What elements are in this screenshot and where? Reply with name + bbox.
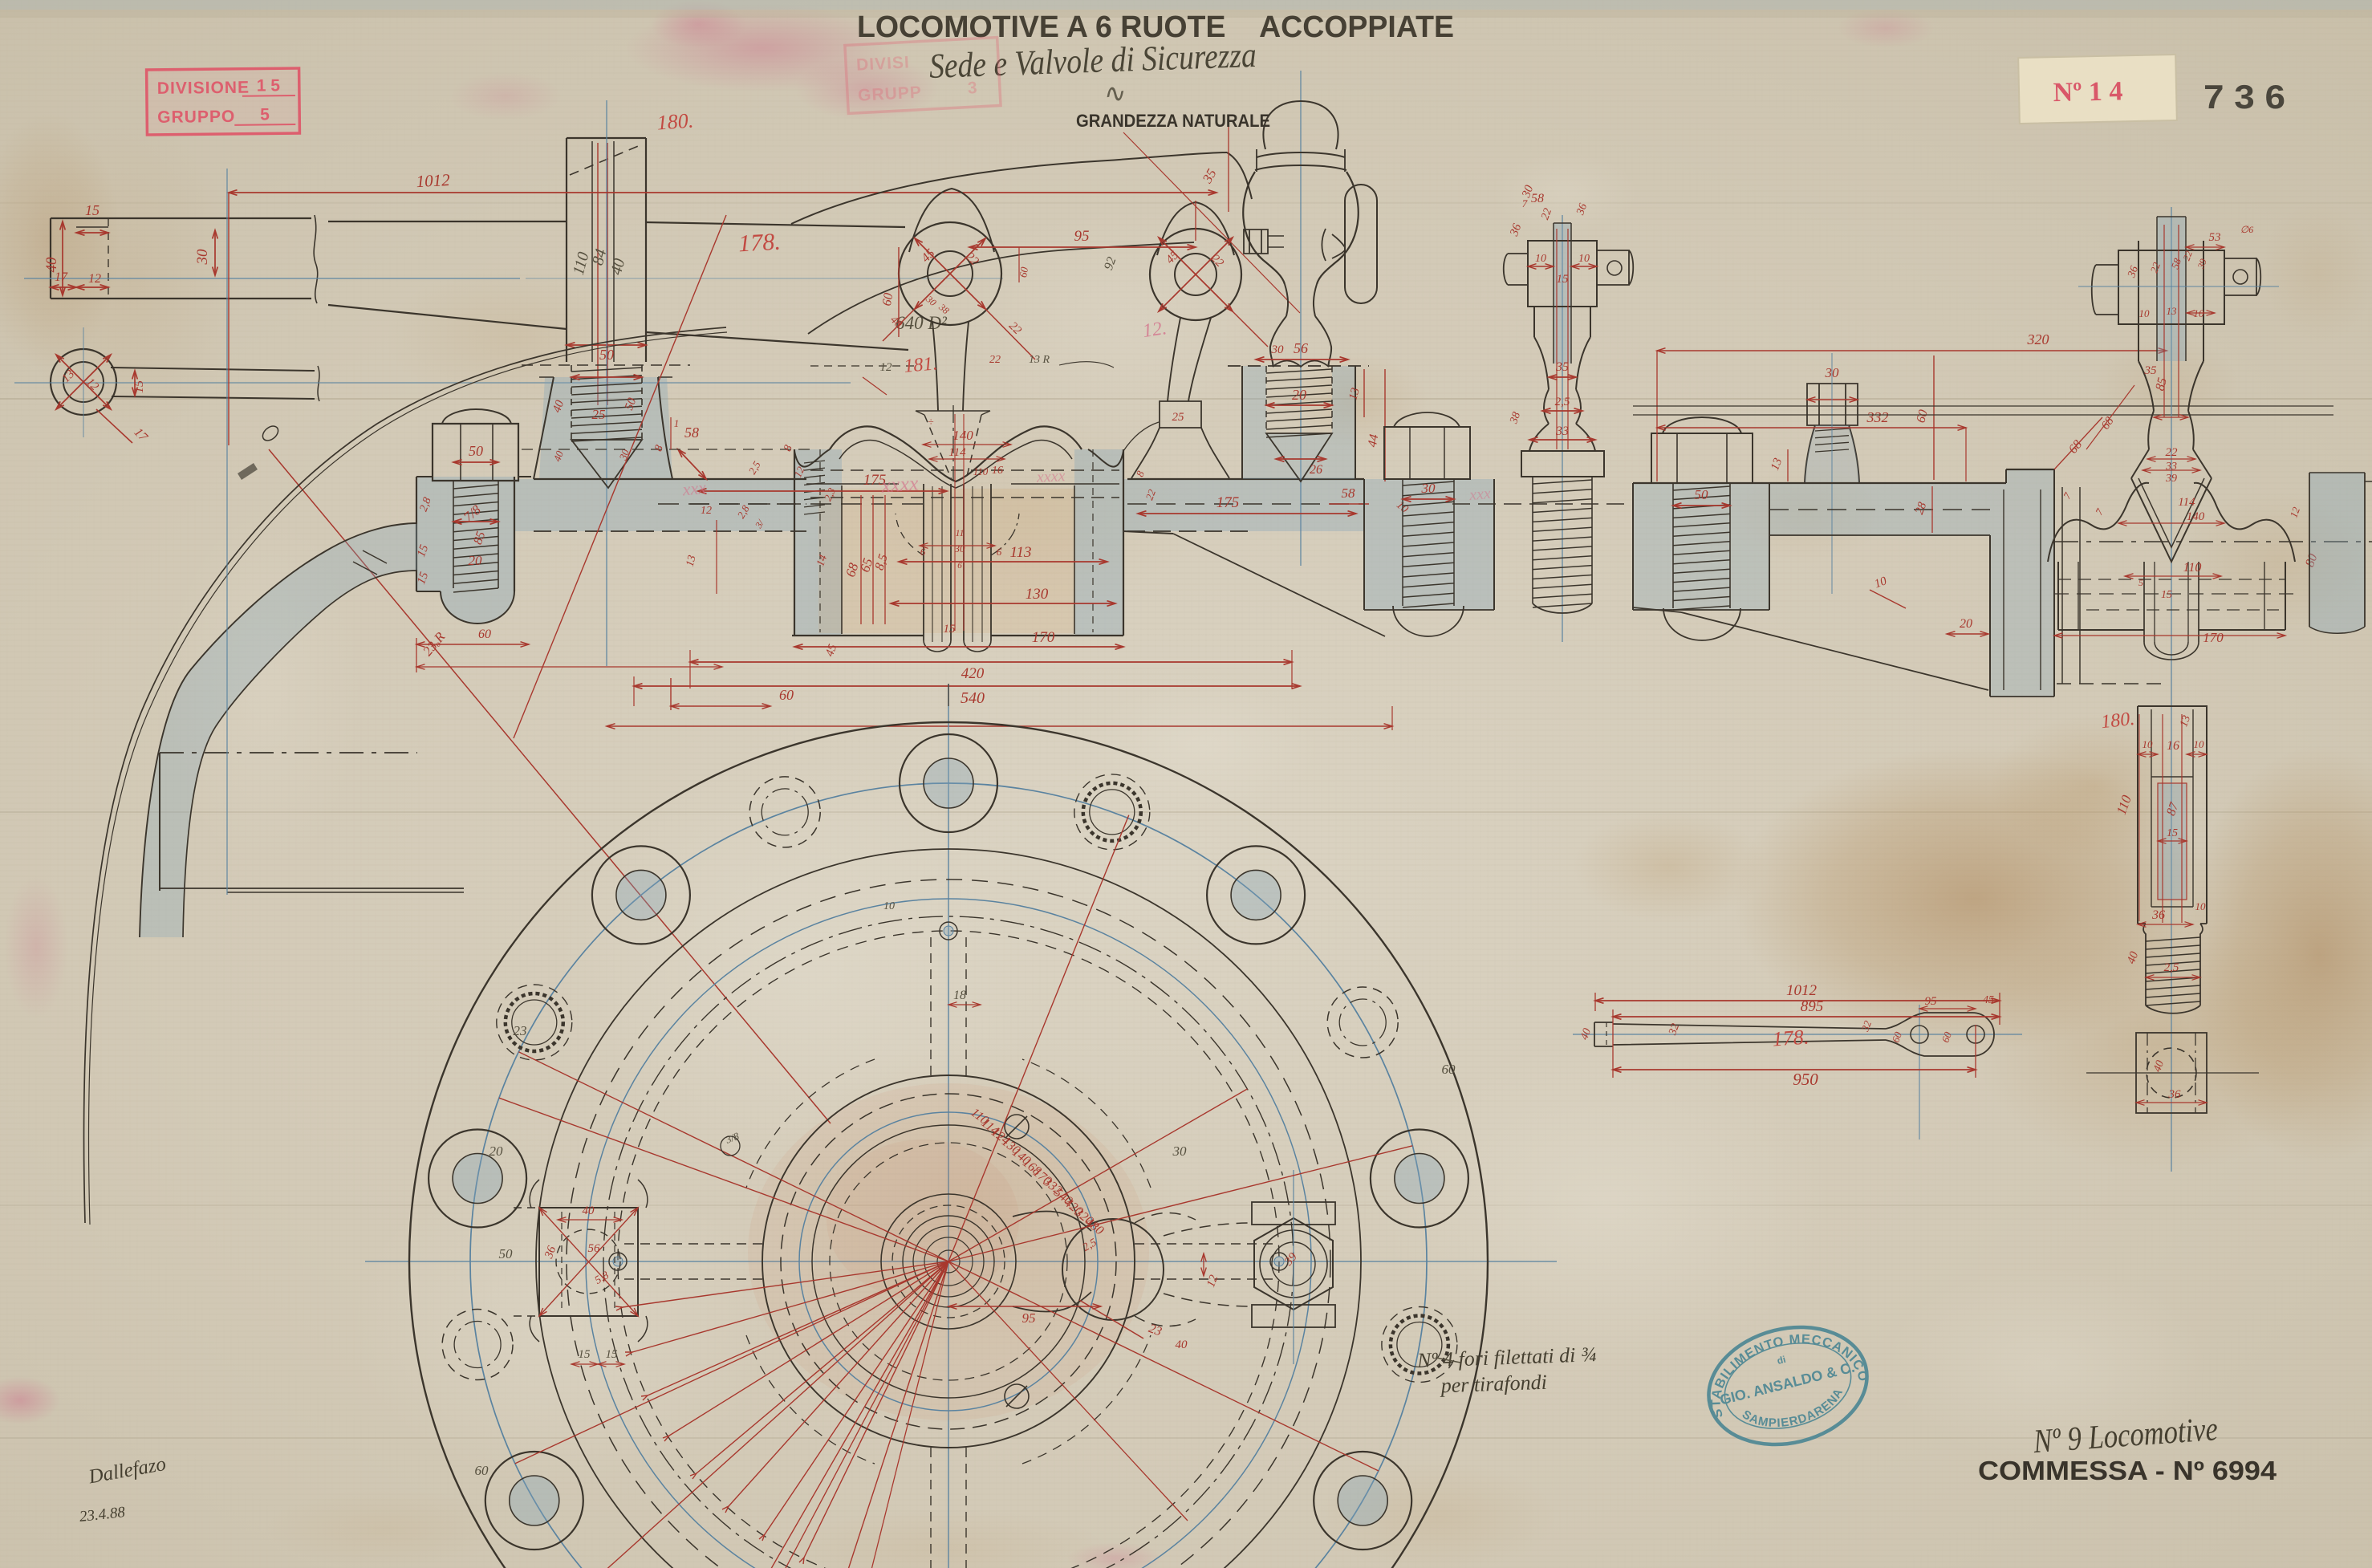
svg-text:60: 60	[880, 292, 896, 307]
svg-text:10: 10	[2139, 307, 2151, 319]
svg-text:20: 20	[469, 553, 483, 568]
svg-text:35: 35	[2144, 364, 2158, 377]
svg-text:140: 140	[952, 428, 973, 443]
svg-text:58: 58	[1342, 485, 1356, 501]
svg-text:175: 175	[1216, 494, 1240, 511]
svg-text:5: 5	[260, 105, 270, 124]
svg-text:15: 15	[85, 202, 100, 218]
svg-text:15: 15	[2167, 827, 2178, 839]
svg-text:3: 3	[967, 79, 977, 98]
svg-text:30: 30	[194, 249, 211, 266]
svg-text:950: 950	[1793, 1070, 1818, 1089]
svg-text:1012: 1012	[416, 170, 451, 191]
svg-text:58: 58	[684, 424, 699, 441]
svg-text:140: 140	[2187, 510, 2205, 523]
svg-text:26: 26	[1310, 463, 1322, 477]
svg-text:36: 36	[2151, 908, 2165, 922]
svg-text:50: 50	[1695, 487, 1709, 502]
svg-text:50: 50	[599, 347, 614, 363]
svg-text:30: 30	[1421, 481, 1436, 496]
svg-text:114: 114	[2178, 496, 2195, 509]
svg-text:332: 332	[1866, 409, 1889, 425]
svg-text:44: 44	[1366, 433, 1382, 449]
svg-text:7 3 6: 7 3 6	[2203, 78, 2285, 116]
svg-text:∅6: ∅6	[2240, 224, 2253, 235]
svg-text:DIVISI: DIVISI	[856, 53, 911, 74]
svg-text:6: 6	[957, 561, 962, 571]
svg-text:22: 22	[2166, 446, 2179, 459]
svg-text:95: 95	[1074, 228, 1090, 245]
svg-text:GRANDEZZA NATURALE: GRANDEZZA NATURALE	[1076, 111, 1270, 131]
svg-text:xxxx: xxxx	[879, 471, 920, 497]
svg-text:110: 110	[2183, 561, 2202, 575]
svg-text:1 5: 1 5	[257, 76, 281, 95]
svg-text:xxx: xxx	[1468, 485, 1492, 504]
svg-text:180.: 180.	[2100, 709, 2135, 733]
svg-text:45: 45	[1983, 994, 1994, 1006]
svg-text:10: 10	[2195, 900, 2207, 912]
svg-text:10: 10	[883, 900, 895, 912]
svg-text:40: 40	[1176, 1338, 1188, 1351]
svg-text:15: 15	[606, 1348, 619, 1361]
svg-text:33: 33	[2165, 461, 2177, 473]
svg-text:10: 10	[1535, 253, 1546, 265]
svg-text:130: 130	[1026, 586, 1049, 603]
svg-text:95: 95	[1022, 1310, 1036, 1326]
svg-text:18: 18	[953, 989, 966, 1002]
svg-text:895: 895	[1801, 998, 1824, 1015]
svg-text:2,5: 2,5	[2164, 961, 2179, 974]
svg-text:170: 170	[2203, 630, 2224, 645]
svg-text:20: 20	[489, 1144, 504, 1159]
svg-text:60: 60	[779, 687, 794, 703]
svg-text:181.: 181.	[903, 353, 938, 377]
svg-text:15: 15	[2161, 589, 2172, 601]
svg-text:DIVISIONE: DIVISIONE	[157, 79, 250, 98]
svg-text:1012: 1012	[1786, 982, 1818, 999]
svg-text:GRUPPO: GRUPPO	[157, 108, 235, 127]
svg-text:GRUPP: GRUPP	[858, 83, 923, 105]
svg-text:53: 53	[2209, 231, 2221, 244]
svg-text:10: 10	[1578, 253, 1590, 265]
svg-text:35: 35	[1555, 360, 1569, 374]
svg-text:Nº 1 4: Nº 1 4	[2053, 76, 2123, 108]
svg-text:33: 33	[1555, 424, 1569, 438]
svg-text:23: 23	[514, 1023, 527, 1038]
svg-text:20: 20	[1292, 387, 1306, 403]
svg-text:2,5: 2,5	[1555, 396, 1570, 408]
svg-text:180.: 180.	[656, 108, 694, 134]
svg-text:12: 12	[701, 505, 712, 517]
svg-text:÷: ÷	[928, 416, 933, 428]
svg-text:COMMESSA - Nº 6994: COMMESSA - Nº 6994	[1978, 1456, 2277, 1485]
svg-text:30: 30	[1271, 343, 1285, 356]
svg-text:15: 15	[1557, 273, 1570, 286]
svg-text:25: 25	[592, 407, 606, 422]
svg-text:50: 50	[469, 443, 483, 459]
svg-text:xxxx: xxxx	[1035, 467, 1066, 486]
svg-text:13 R: 13 R	[1029, 354, 1050, 366]
svg-text:178.: 178.	[737, 229, 781, 258]
svg-text:170: 170	[1032, 629, 1055, 646]
svg-text:5: 5	[2138, 577, 2143, 588]
svg-text:10: 10	[2143, 738, 2154, 750]
svg-text:15: 15	[579, 1348, 591, 1361]
svg-text:11: 11	[955, 527, 964, 538]
svg-text:xxx: xxx	[680, 477, 707, 500]
svg-text:50: 50	[499, 1246, 514, 1261]
svg-text:15: 15	[132, 380, 146, 393]
svg-text:12: 12	[880, 361, 893, 374]
svg-text:20: 20	[1960, 617, 1972, 631]
svg-text:60: 60	[475, 1463, 489, 1478]
svg-text:15: 15	[944, 623, 957, 636]
svg-text:36: 36	[2168, 1088, 2182, 1101]
svg-text:39: 39	[2165, 473, 2177, 485]
svg-text:40: 40	[583, 1204, 595, 1217]
svg-text:25: 25	[1172, 411, 1185, 424]
svg-text:56: 56	[588, 1242, 601, 1255]
svg-text:110: 110	[973, 465, 989, 477]
svg-text:17: 17	[55, 270, 68, 284]
svg-text:6: 6	[997, 546, 1002, 558]
svg-text:12: 12	[88, 272, 101, 286]
svg-text:7: 7	[1522, 197, 1528, 209]
svg-text:13: 13	[2167, 305, 2178, 317]
svg-text:420: 420	[961, 665, 985, 682]
svg-text:30: 30	[1172, 1144, 1188, 1159]
svg-text:16: 16	[2167, 739, 2179, 753]
svg-text:113: 113	[1009, 544, 1031, 561]
svg-text:10: 10	[2194, 307, 2205, 319]
svg-text:60: 60	[478, 628, 491, 641]
svg-text:22: 22	[989, 354, 1001, 366]
svg-text:10: 10	[2194, 738, 2205, 750]
svg-text:16: 16	[992, 465, 1003, 477]
svg-text:12.: 12.	[1141, 318, 1168, 342]
svg-text:540: 540	[961, 689, 985, 707]
svg-text:1: 1	[674, 417, 680, 429]
svg-text:60: 60	[1442, 1062, 1456, 1077]
svg-text:per tirafondi: per tirafondi	[1439, 1371, 1547, 1398]
svg-text:178.: 178.	[1772, 1025, 1809, 1050]
svg-text:56: 56	[1294, 340, 1308, 356]
svg-text:320: 320	[2027, 331, 2049, 347]
